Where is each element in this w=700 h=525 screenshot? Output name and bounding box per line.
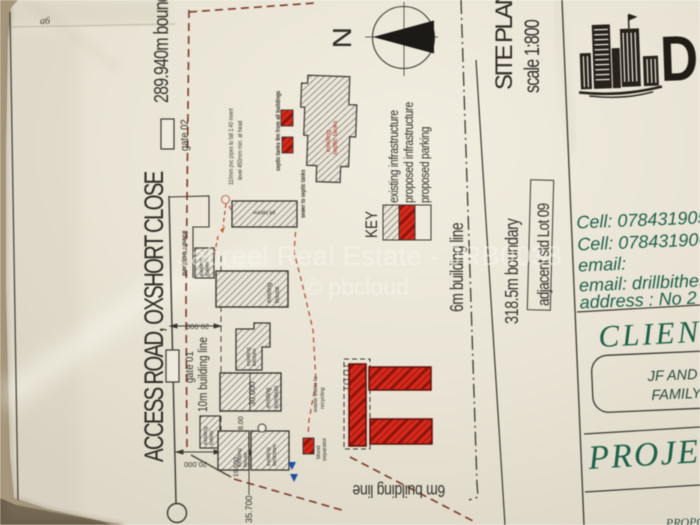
svg-text:bedroom: bedroom xyxy=(272,444,278,466)
svg-text:6m building line: 6m building line xyxy=(352,481,445,500)
svg-text:JF AND: JF AND xyxy=(646,367,698,385)
svg-text:20.000: 20.000 xyxy=(186,322,209,331)
svg-text:pit latrine: pit latrine xyxy=(253,209,275,215)
svg-text:CLIENT: CLIENT xyxy=(598,313,700,354)
svg-text:D: D xyxy=(659,23,699,95)
svg-text:gate 01: gate 01 xyxy=(184,351,196,383)
svg-text:scale 1:800: scale 1:800 xyxy=(520,19,544,93)
svg-text:sewer to septic tanks: sewer to septic tanks xyxy=(301,170,308,218)
svg-text:N: N xyxy=(328,27,357,49)
svg-text:30.000: 30.000 xyxy=(248,381,257,406)
svg-text:SITE PLAN: SITE PLAN xyxy=(491,0,518,90)
svg-text:existing: existing xyxy=(266,388,272,408)
svg-text:existing infrastructure: existing infrastructure xyxy=(388,110,401,203)
svg-text:8.00: 8.00 xyxy=(238,416,245,430)
svg-text:email:: email: xyxy=(578,254,627,276)
svg-text:kitchen: kitchen xyxy=(252,349,258,366)
svg-text:septic tanks 9m from all build: septic tanks 9m from all buildings xyxy=(276,91,283,171)
svg-text:waste water to: waste water to xyxy=(313,377,319,413)
svg-text:house: house xyxy=(275,286,281,303)
svg-text:110mm pvc pipes to fall 1:40 i: 110mm pvc pipes to fall 1:40 invert xyxy=(229,108,236,185)
svg-text:recycling: recycling xyxy=(320,387,326,409)
svg-text:toilets: toilets xyxy=(209,430,215,445)
svg-text:© pbcloud: © pbcloud xyxy=(305,274,409,300)
svg-text:proposed infrastructure: proposed infrastructure xyxy=(403,102,416,203)
svg-text:proposed parking: proposed parking xyxy=(419,127,432,203)
svg-text:289.940m boundary: 289.940m boundary xyxy=(150,0,172,103)
svg-text:19.500: 19.500 xyxy=(233,457,240,477)
svg-text:10m building line: 10m building line xyxy=(197,337,210,412)
svg-text:ACCESS ROAD, OXSHORT CLOSE: ACCESS ROAD, OXSHORT CLOSE xyxy=(139,171,169,462)
svg-text:existing: existing xyxy=(267,283,273,303)
svg-text:level 450mm min. at head: level 450mm min. at head xyxy=(238,121,245,180)
svg-text:35.700: 35.700 xyxy=(244,495,254,523)
svg-text:separator: separator xyxy=(322,438,328,461)
svg-text:20.000: 20.000 xyxy=(184,460,207,469)
svg-text:PROPO: PROPO xyxy=(665,515,700,525)
svg-text:house: house xyxy=(243,452,249,467)
svg-text:gate 02: gate 02 xyxy=(179,119,191,151)
svg-text:KEY: KEY xyxy=(363,211,382,238)
svg-text:kombuis: kombuis xyxy=(274,386,280,408)
svg-text:Jabreel Real Estate - JRB0038: Jabreel Real Estate - JRB0038 xyxy=(177,241,562,271)
svg-text:septic tanks: septic tanks xyxy=(332,120,339,155)
svg-text:existing: existing xyxy=(325,130,332,152)
svg-text:FAMILY: FAMILY xyxy=(651,386,700,404)
svg-text:a6: a6 xyxy=(40,16,50,27)
